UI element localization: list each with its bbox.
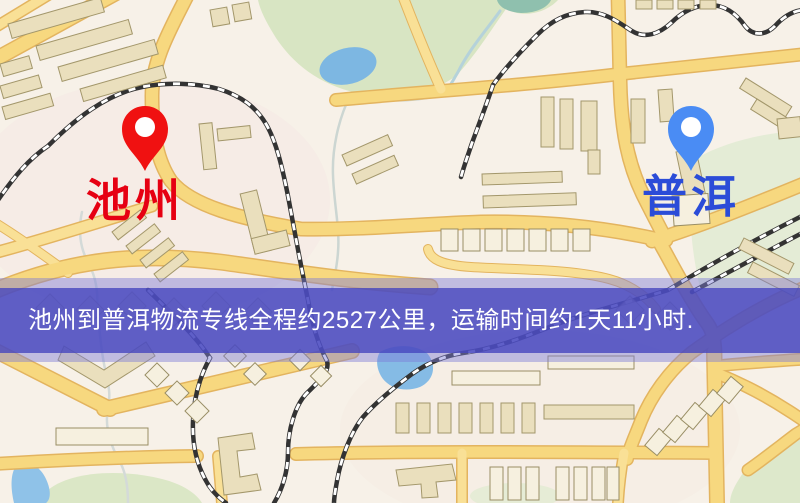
route-info-text: 池州到普洱物流专线全程约2527公里，运输时间约1天11小时. (28, 288, 694, 353)
destination-pin-hole (681, 117, 701, 137)
origin-pin-hole (135, 117, 155, 137)
origin-city-label: 池州 (86, 178, 184, 223)
route-info-banner: 池州到普洱物流专线全程约2527公里，运输时间约1天11小时. (0, 288, 800, 353)
route-map-image: 池州 普洱 池州到普洱物流专线全程约2527公里，运输时间约1天11小时. (0, 0, 800, 503)
map-background (0, 0, 800, 503)
destination-city-label: 普洱 (642, 174, 740, 219)
